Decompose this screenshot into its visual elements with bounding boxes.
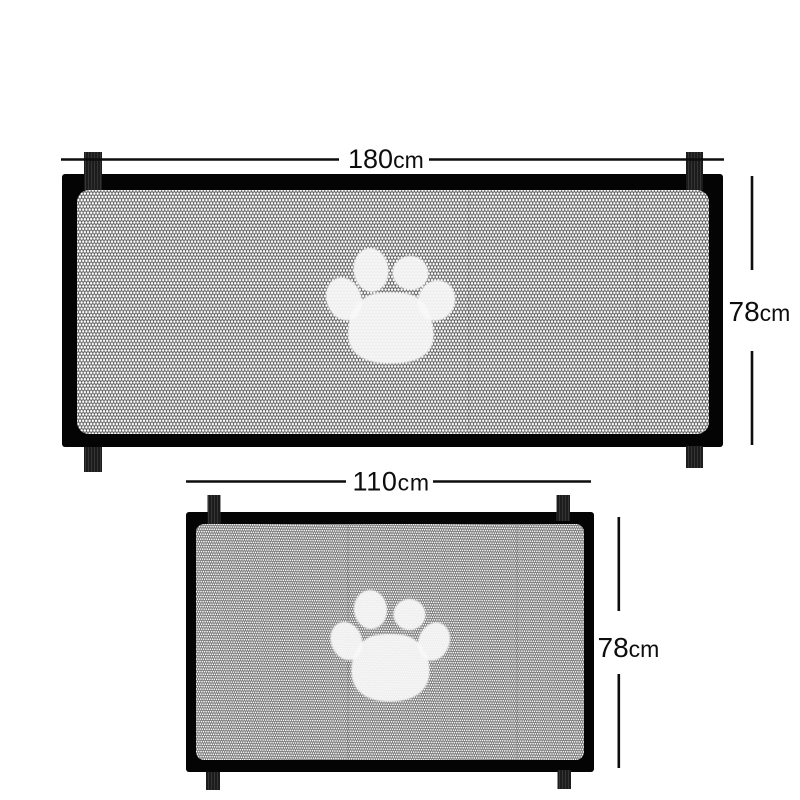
- svg-text:78cm: 78cm: [729, 296, 791, 327]
- svg-text:180cm: 180cm: [348, 144, 424, 174]
- svg-text:110cm: 110cm: [353, 467, 430, 497]
- svg-text:78cm: 78cm: [598, 632, 660, 663]
